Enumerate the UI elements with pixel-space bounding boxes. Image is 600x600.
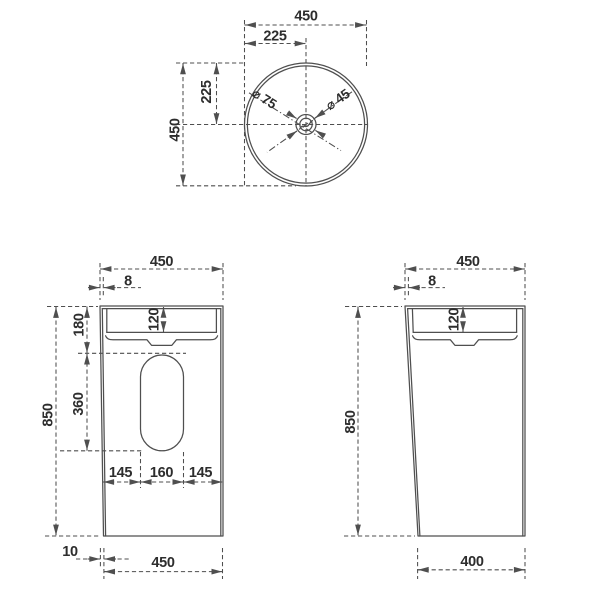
dim-front-base-inset: 10 [62, 544, 130, 560]
dim-top-half-width: 225 [245, 29, 307, 45]
dim-label: 10 [62, 544, 78, 560]
dim-label: 160 [150, 465, 174, 481]
dim-label: 180 [72, 313, 88, 337]
dim-label: 8 [124, 274, 132, 290]
dim-label: ⌀ 45 [323, 86, 353, 113]
dim-side-bottom-width: 400 [418, 554, 525, 570]
dim-label: 450 [150, 254, 174, 270]
dim-front-upper-height: 180 [72, 307, 88, 453]
dim-label: 850 [343, 410, 359, 434]
top-view: 450 225 450 225 ⌀ 75 [168, 9, 368, 187]
dim-label: 450 [456, 254, 480, 270]
dim-side-basin-depth: 120 [447, 307, 464, 332]
dim-label: 145 [109, 465, 133, 481]
dim-label: 360 [71, 392, 87, 416]
basin-dimension-drawing: 450 225 450 225 ⌀ 75 [0, 0, 600, 600]
front-extension-lines [45, 263, 223, 579]
dim-top-width: 450 [245, 9, 367, 26]
dim-label: 225 [199, 80, 215, 104]
side-view: 450 8 120 850 400 [343, 254, 525, 579]
dim-front-top-width: 450 [100, 254, 223, 270]
dim-label: 8 [428, 274, 436, 290]
dim-top-half-height: 225 [199, 63, 217, 125]
dim-front-bottom-width: 450 [104, 555, 223, 572]
dim-label: 120 [147, 308, 163, 332]
dim-label: 225 [263, 29, 287, 45]
front-basin-underside [106, 336, 218, 346]
dim-front-basin-depth: 120 [147, 307, 164, 332]
front-body-outline [100, 306, 223, 536]
dim-label: ⌀ 75 [249, 85, 279, 112]
dim-front-cutout-chain: 145 160 145 [103, 465, 222, 482]
side-body-outline [405, 306, 525, 536]
side-extension-lines [344, 263, 525, 579]
dim-label: 850 [41, 403, 57, 427]
dim-label: 450 [168, 118, 184, 142]
dim-label: 400 [460, 554, 484, 570]
dim-label: 450 [294, 9, 318, 25]
dim-side-top-width: 450 [405, 254, 525, 270]
front-oval-cutout [141, 355, 184, 451]
technical-drawing-canvas: 450 225 450 225 ⌀ 75 [0, 0, 600, 600]
dim-top-height: 450 [168, 63, 184, 186]
dim-front-rim-offset: 8 [88, 274, 141, 290]
dim-label: 120 [447, 308, 463, 332]
side-basin-underside [413, 336, 518, 346]
front-view: 450 8 120 180 360 850 [41, 254, 224, 579]
dim-front-cutout-height: 360 [71, 354, 87, 451]
dim-label: 450 [151, 555, 175, 571]
dim-label: 145 [189, 465, 213, 481]
dim-side-total-height: 850 [343, 307, 359, 537]
leader-drain-diameter: ⌀ 75 [249, 85, 341, 150]
leader-faucet-diameter: ⌀ 45 [267, 86, 353, 153]
dim-side-rim-offset: 8 [393, 274, 445, 290]
dim-front-total-height: 850 [41, 307, 57, 537]
